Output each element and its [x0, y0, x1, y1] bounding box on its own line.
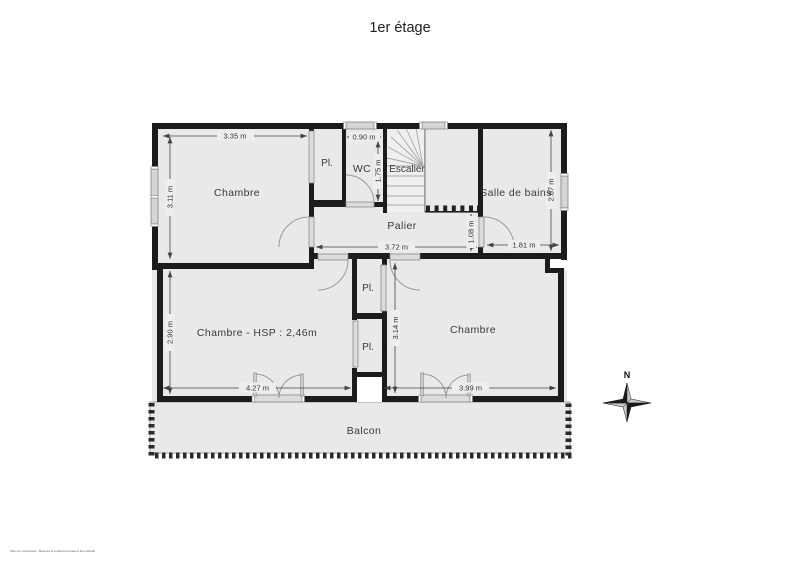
- sliding-door-lower-closet: [353, 321, 358, 367]
- room-label-pl-top: Pl.: [321, 158, 333, 169]
- door-wc: [346, 202, 374, 207]
- dimension-label-right-room-height: 3.14 m: [391, 317, 400, 340]
- french-door-left: [254, 395, 302, 402]
- sliding-door-top-closet: [309, 131, 314, 183]
- floor-plan-svg: 1er étage: [0, 0, 800, 566]
- dimension-label-palier-width: 3.72 m: [385, 243, 408, 252]
- window-left-2: [151, 198, 158, 224]
- window-left-1: [151, 169, 158, 196]
- disclaimer-text: Plan non contractuel - Mesures et surfac…: [10, 549, 95, 553]
- room-label-escalier: Escalier: [389, 164, 425, 175]
- window-top-wc: [346, 122, 374, 129]
- room-label-pl-lower: Pl.: [362, 342, 374, 353]
- window-bathroom: [561, 176, 568, 208]
- dimension-label-wc-height: 1.75 m: [374, 160, 383, 183]
- floor-plan-page: 1er étage: [0, 0, 800, 566]
- dimension-label-palier-depth: 1.08 m: [467, 221, 476, 244]
- dimension-label-wc-width: 0.90 m: [353, 133, 376, 142]
- door-left-chambre: [318, 254, 348, 260]
- room-label-pl-upper: Pl.: [362, 283, 374, 294]
- room-label-wc: WC: [353, 163, 371, 175]
- door-top-chambre: [309, 217, 314, 247]
- compass: N: [603, 370, 651, 422]
- dimension-label-left-room-height: 2.90 m: [166, 321, 175, 344]
- door-bathroom: [479, 217, 484, 247]
- window-top-stairs: [422, 122, 445, 129]
- compass-north-label: N: [624, 370, 631, 380]
- compass-rose-icon: [603, 383, 651, 422]
- dimension-label-right-room-width: 3.99 m: [459, 384, 482, 393]
- dimension-label-bathroom-width: 1.81 m: [513, 241, 536, 250]
- room-label-chambre-left: Chambre - HSP : 2,46m: [197, 327, 317, 339]
- sliding-door-upper-closet: [381, 265, 386, 311]
- dimension-label-left-room-width: 4.27 m: [246, 384, 269, 393]
- room-label-chambre-right: Chambre: [450, 324, 496, 336]
- room-label-salle-de-bains: Salle de bains: [480, 187, 552, 199]
- page-title: 1er étage: [369, 20, 430, 36]
- dimension-label-top-room-width: 3.35 m: [224, 132, 247, 141]
- dimension-label-top-room-height: 3.11 m: [166, 186, 175, 208]
- room-label-balcon: Balcon: [347, 425, 382, 437]
- room-label-chambre-top: Chambre: [214, 187, 260, 199]
- room-label-palier: Palier: [387, 220, 416, 232]
- door-right-chambre: [390, 254, 420, 260]
